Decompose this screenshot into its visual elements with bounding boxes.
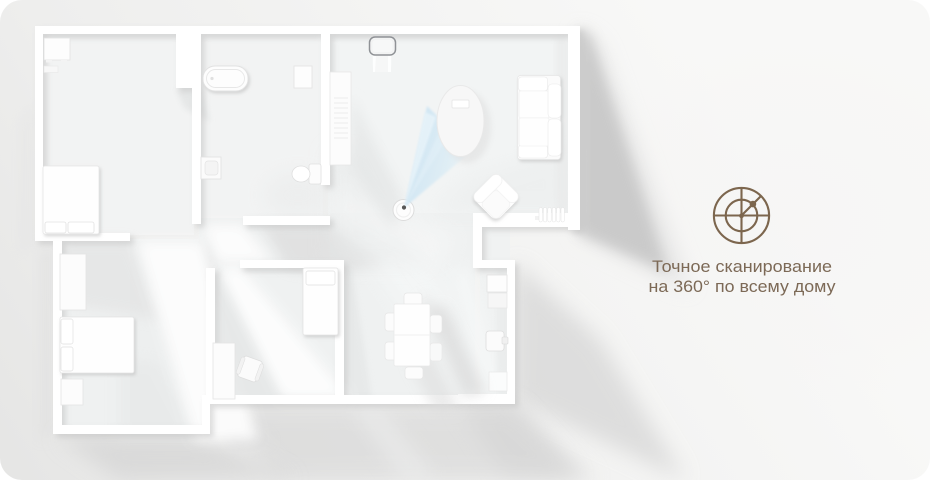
svg-text:Точное сканирование: Точное сканирование	[652, 257, 832, 276]
svg-text:на 360° по всему дому: на 360° по всему дому	[649, 277, 837, 296]
